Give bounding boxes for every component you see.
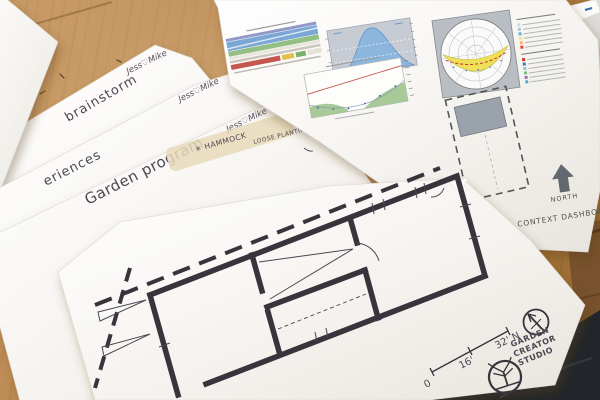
photo-scene: brainstorm Jess♡Mike eriences Jess♡Mike … <box>0 0 600 400</box>
scene-overlay: brainstorm Jess♡Mike eriences Jess♡Mike … <box>0 0 600 400</box>
sun-path-diagram <box>432 10 520 98</box>
